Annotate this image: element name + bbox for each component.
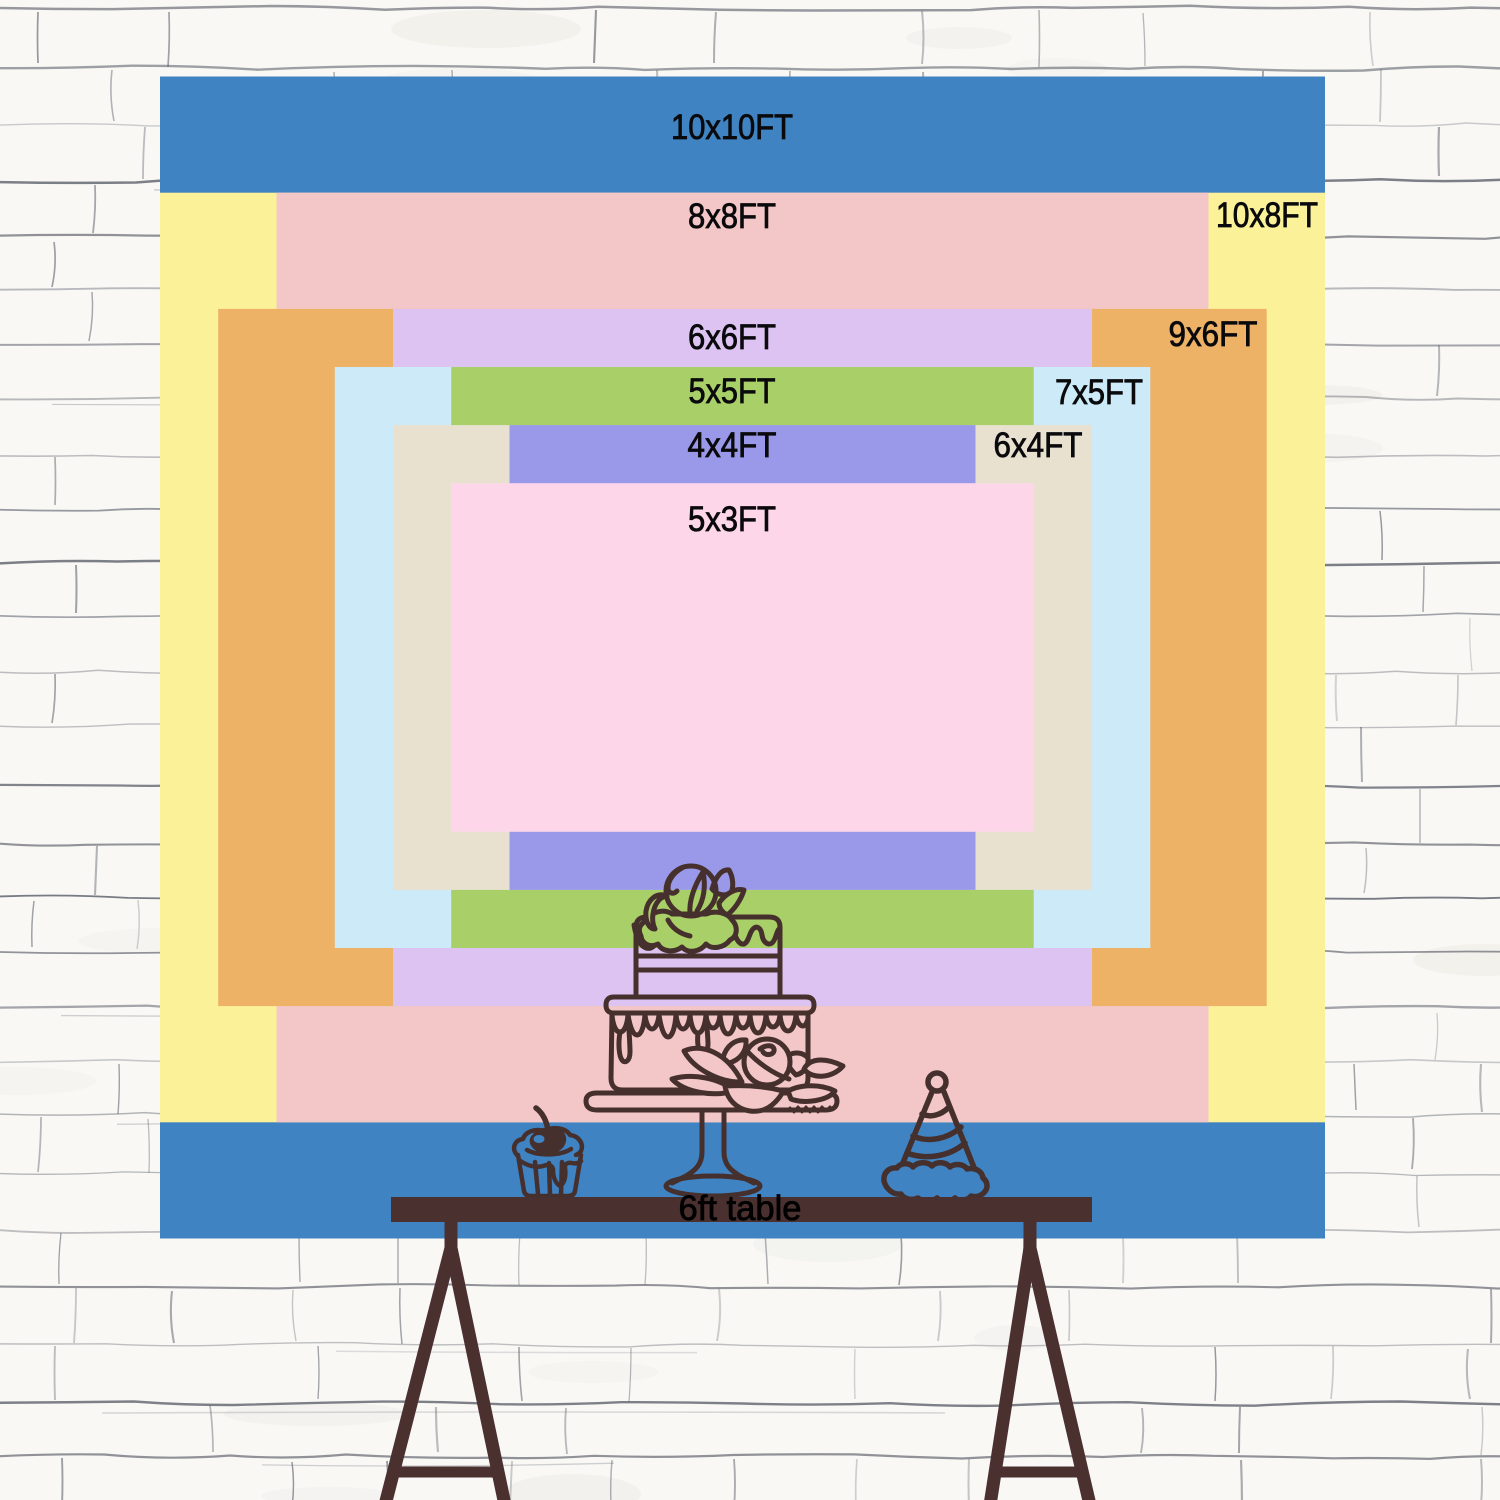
- svg-text:6ft table: 6ft table: [679, 1189, 802, 1228]
- svg-text:8x8FT: 8x8FT: [688, 197, 776, 236]
- svg-text:4x4FT: 4x4FT: [688, 426, 777, 465]
- svg-text:7x5FT: 7x5FT: [1055, 373, 1143, 412]
- svg-text:6x6FT: 6x6FT: [688, 318, 776, 357]
- svg-text:6x4FT: 6x4FT: [994, 426, 1083, 465]
- svg-text:5x5FT: 5x5FT: [689, 372, 776, 411]
- svg-text:10x8FT: 10x8FT: [1216, 196, 1318, 235]
- svg-text:10x10FT: 10x10FT: [671, 108, 793, 147]
- svg-text:5x3FT: 5x3FT: [688, 500, 776, 539]
- svg-text:9x6FT: 9x6FT: [1169, 315, 1258, 354]
